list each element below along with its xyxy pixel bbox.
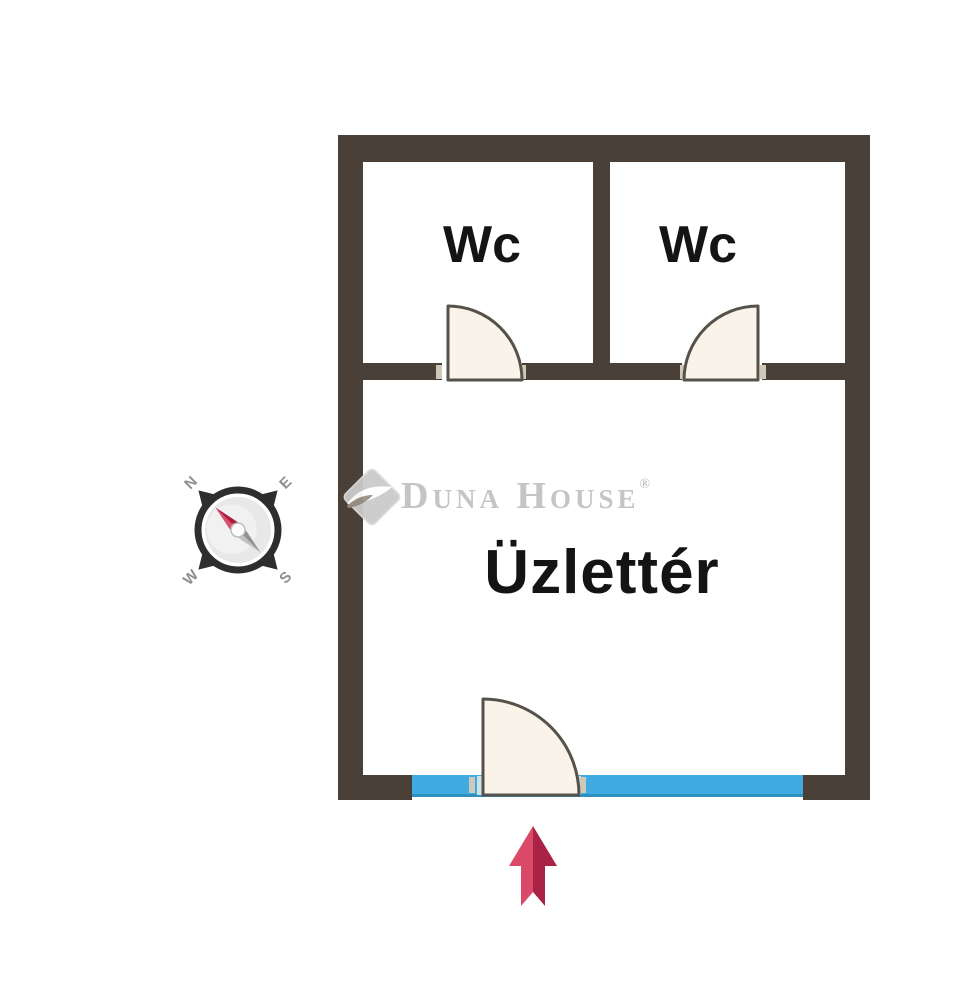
- door-wc-right-icon: [684, 306, 758, 380]
- wall-wc-row-right-segment: [762, 363, 846, 380]
- door-entrance-icon: [483, 699, 579, 795]
- room-label-uzletter: Üzlettér: [380, 542, 824, 604]
- compass-icon: N E S W: [133, 426, 343, 636]
- compass-letter-w: W: [180, 566, 203, 589]
- room-label-wc-right: Wc: [618, 219, 778, 271]
- wall-top: [338, 135, 870, 162]
- storefront-window: [410, 775, 803, 797]
- registered-trademark-icon: ®: [640, 477, 650, 492]
- wall-wc-row-middle-segment: [522, 363, 682, 380]
- interior-walls: [362, 162, 846, 380]
- compass-letter-e: E: [276, 473, 295, 492]
- wall-wc-row-left-segment: [362, 363, 442, 380]
- wall-bottom-right-segment: [803, 775, 870, 800]
- compass-letter-n: N: [181, 473, 201, 493]
- wall-left: [338, 135, 363, 800]
- storefront-window-edge: [410, 794, 803, 797]
- floor-plan-page: N E S W Wc Wc Üzlettér Duna House®: [0, 0, 974, 1000]
- jamb-icon: [580, 777, 586, 793]
- jamb-icon: [760, 365, 766, 379]
- wall-bottom-left-segment: [338, 775, 412, 800]
- jamb-icon: [469, 777, 475, 793]
- jamb-icon: [436, 365, 442, 379]
- room-label-wc-left: Wc: [402, 219, 562, 271]
- compass-letter-s: S: [276, 568, 295, 587]
- brand-name: Duna House: [401, 475, 640, 517]
- brand-watermark: Duna House®: [401, 477, 650, 515]
- wall-right: [845, 135, 870, 800]
- entrance-arrow-icon: [509, 826, 557, 906]
- wall-wc-divider: [593, 162, 610, 363]
- door-wc-left-icon: [448, 306, 522, 380]
